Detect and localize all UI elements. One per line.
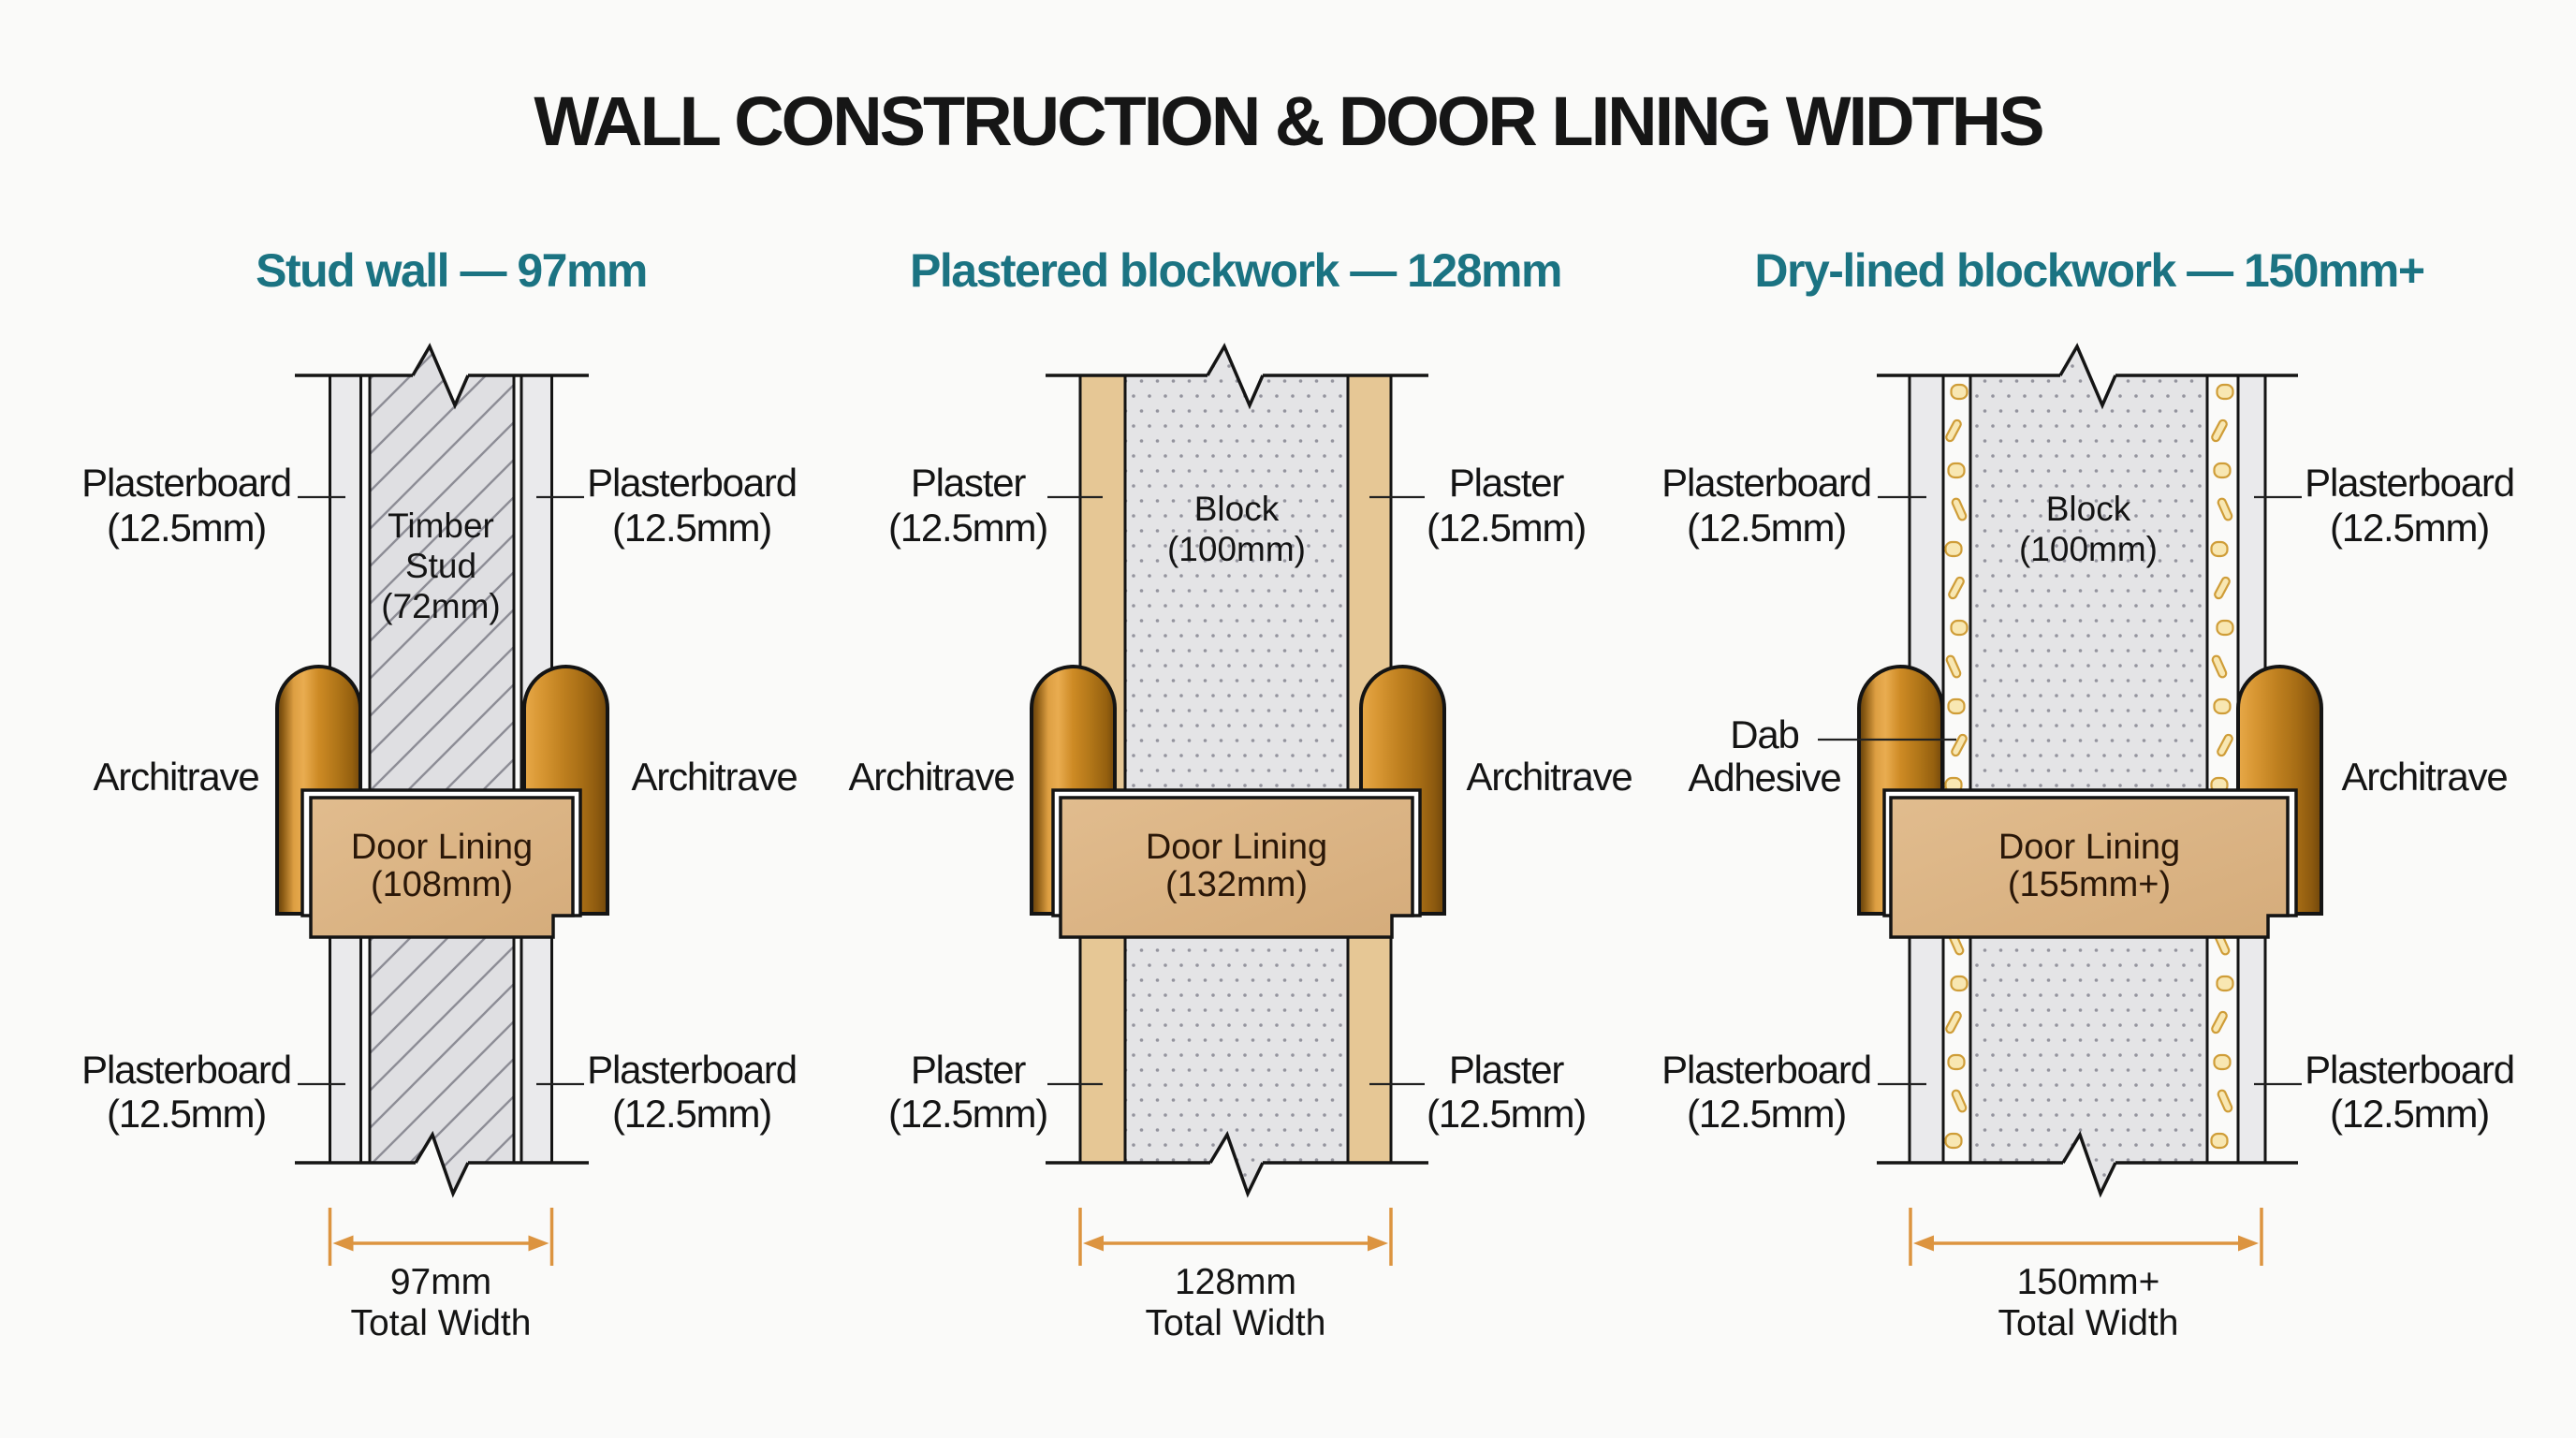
svg-text:(12.5mm): (12.5mm) [2330, 1092, 2489, 1136]
svg-text:(12.5mm): (12.5mm) [1687, 1092, 1846, 1136]
svg-text:Plaster: Plaster [911, 1048, 1027, 1092]
svg-text:Timber: Timber [388, 506, 494, 545]
svg-text:Stud: Stud [405, 547, 476, 585]
svg-text:Door Lining: Door Lining [1998, 828, 2180, 867]
svg-text:Architrave: Architrave [1466, 755, 1632, 799]
svg-text:(108mm): (108mm) [371, 865, 513, 904]
svg-text:97mm: 97mm [390, 1262, 491, 1302]
svg-text:Plastered blockwork — 128mm: Plastered blockwork — 128mm [910, 244, 1561, 297]
svg-text:Plasterboard: Plasterboard [2305, 461, 2514, 505]
svg-text:Architrave: Architrave [848, 755, 1014, 799]
svg-text:Plaster: Plaster [1449, 1048, 1565, 1092]
svg-text:(12.5mm): (12.5mm) [612, 1092, 771, 1136]
svg-text:Plasterboard: Plasterboard [587, 461, 797, 505]
svg-text:(72mm): (72mm) [381, 587, 500, 625]
svg-text:Total Width: Total Width [351, 1303, 532, 1343]
svg-text:150mm+: 150mm+ [2017, 1262, 2160, 1302]
svg-text:Plasterboard: Plasterboard [2305, 1048, 2514, 1092]
svg-text:(12.5mm): (12.5mm) [1427, 506, 1586, 550]
svg-text:Total Width: Total Width [1146, 1303, 1326, 1343]
svg-text:(12.5mm): (12.5mm) [1687, 506, 1846, 550]
svg-text:Plaster: Plaster [1449, 461, 1565, 505]
svg-text:(132mm): (132mm) [1165, 865, 1308, 904]
svg-text:Stud wall — 97mm: Stud wall — 97mm [256, 244, 647, 297]
svg-text:Plaster: Plaster [911, 461, 1027, 505]
svg-text:(100mm): (100mm) [1167, 530, 1306, 568]
svg-text:Plasterboard: Plasterboard [587, 1048, 797, 1092]
svg-text:Plasterboard: Plasterboard [81, 461, 291, 505]
svg-text:(12.5mm): (12.5mm) [888, 1092, 1047, 1136]
svg-text:Total Width: Total Width [1998, 1303, 2179, 1343]
svg-text:Plasterboard: Plasterboard [1661, 1048, 1871, 1092]
svg-text:Architrave: Architrave [93, 755, 258, 799]
svg-text:Dry-lined blockwork — 150mm+: Dry-lined blockwork — 150mm+ [1754, 244, 2424, 297]
svg-text:Plasterboard: Plasterboard [1661, 461, 1871, 505]
svg-text:Door Lining: Door Lining [351, 828, 533, 867]
svg-text:(12.5mm): (12.5mm) [612, 506, 771, 550]
svg-text:(12.5mm): (12.5mm) [2330, 506, 2489, 550]
svg-text:128mm: 128mm [1175, 1262, 1296, 1302]
svg-text:WALL CONSTRUCTION & DOOR LININ: WALL CONSTRUCTION & DOOR LINING WIDTHS [534, 82, 2042, 160]
svg-text:Architrave: Architrave [631, 755, 797, 799]
svg-text:(155mm+): (155mm+) [2008, 865, 2171, 904]
svg-text:Dab: Dab [1730, 712, 1798, 756]
svg-text:Adhesive: Adhesive [1688, 756, 1840, 800]
svg-text:(12.5mm): (12.5mm) [107, 1092, 266, 1136]
svg-text:Architrave: Architrave [2341, 755, 2507, 799]
svg-text:(12.5mm): (12.5mm) [107, 506, 266, 550]
svg-text:(12.5mm): (12.5mm) [1427, 1092, 1586, 1136]
svg-text:Door Lining: Door Lining [1146, 828, 1327, 867]
svg-text:(100mm): (100mm) [2019, 530, 2158, 568]
svg-text:Plasterboard: Plasterboard [81, 1048, 291, 1092]
svg-text:Block: Block [1194, 490, 1280, 528]
svg-text:(12.5mm): (12.5mm) [888, 506, 1047, 550]
svg-text:Block: Block [2046, 490, 2131, 528]
